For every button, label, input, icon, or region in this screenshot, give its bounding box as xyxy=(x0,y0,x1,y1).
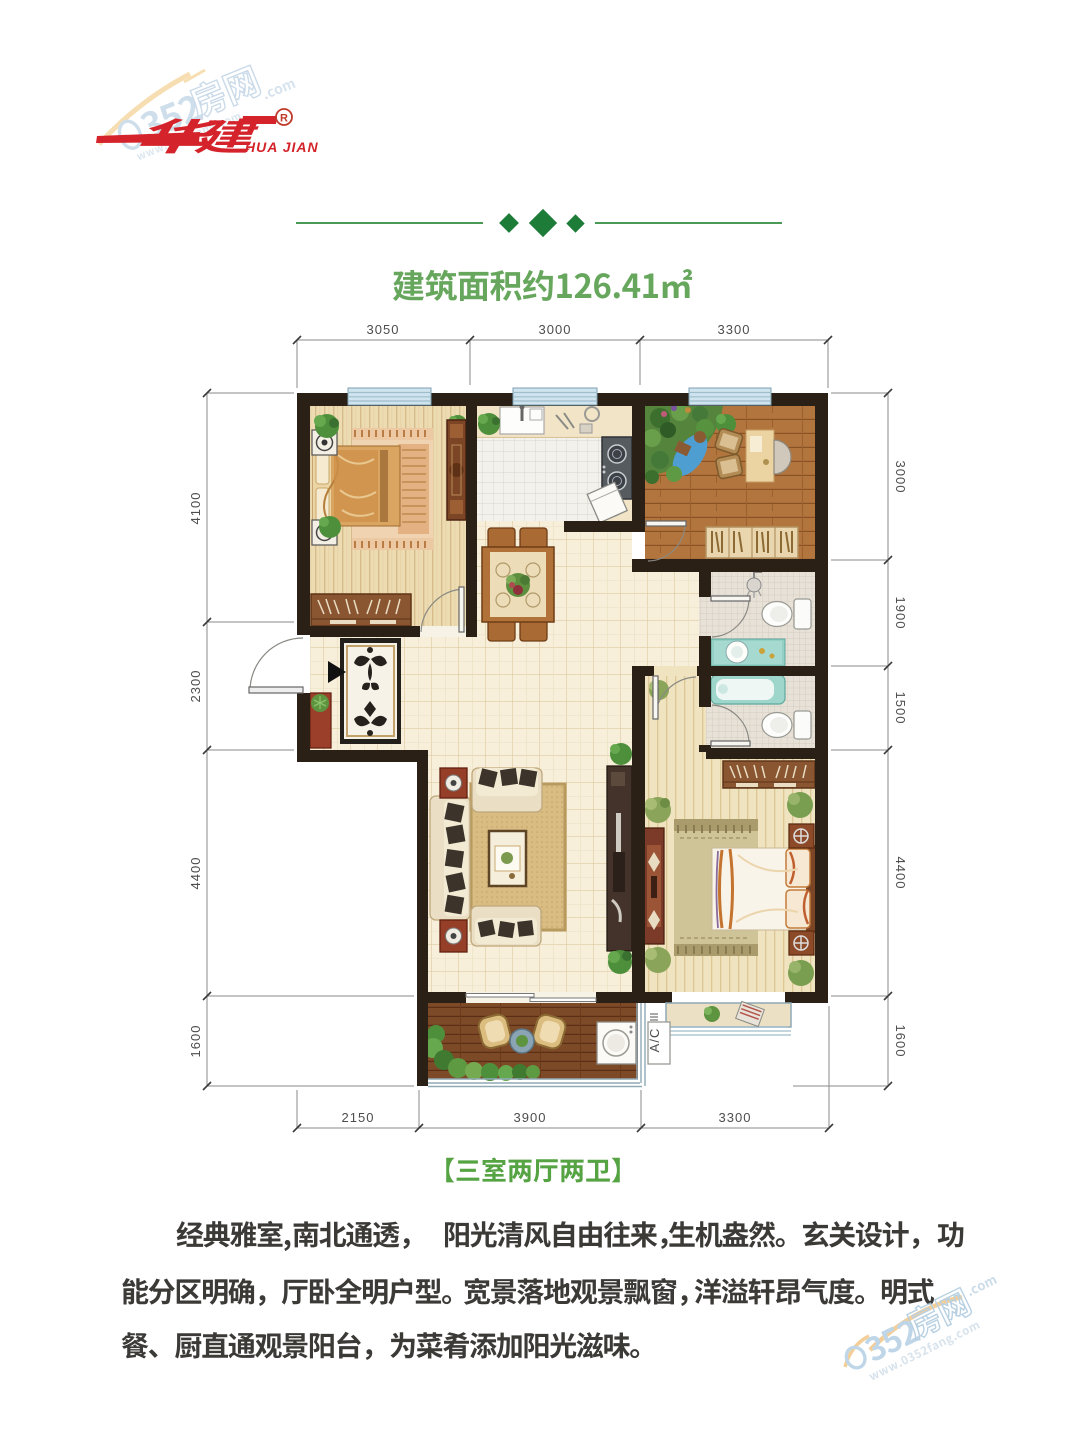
svg-text:3000: 3000 xyxy=(893,461,908,494)
svg-text:1600: 1600 xyxy=(893,1025,908,1058)
svg-text:4400: 4400 xyxy=(893,857,908,890)
svg-text:1600: 1600 xyxy=(188,1025,203,1058)
svg-text:3900: 3900 xyxy=(514,1110,547,1125)
svg-text:HUA JIAN: HUA JIAN xyxy=(245,139,319,155)
svg-text:3000: 3000 xyxy=(539,322,572,337)
svg-text:1900: 1900 xyxy=(893,597,908,630)
svg-text:2300: 2300 xyxy=(188,670,203,703)
svg-text:3300: 3300 xyxy=(718,322,751,337)
svg-text:3300: 3300 xyxy=(719,1110,752,1125)
svg-text:A/C: A/C xyxy=(647,1028,662,1053)
svg-text:3050: 3050 xyxy=(367,322,400,337)
svg-text:R: R xyxy=(280,113,288,125)
svg-text:4100: 4100 xyxy=(188,492,203,525)
svg-text:2150: 2150 xyxy=(342,1110,375,1125)
svg-text:1500: 1500 xyxy=(893,692,908,725)
svg-text:4400: 4400 xyxy=(188,857,203,890)
